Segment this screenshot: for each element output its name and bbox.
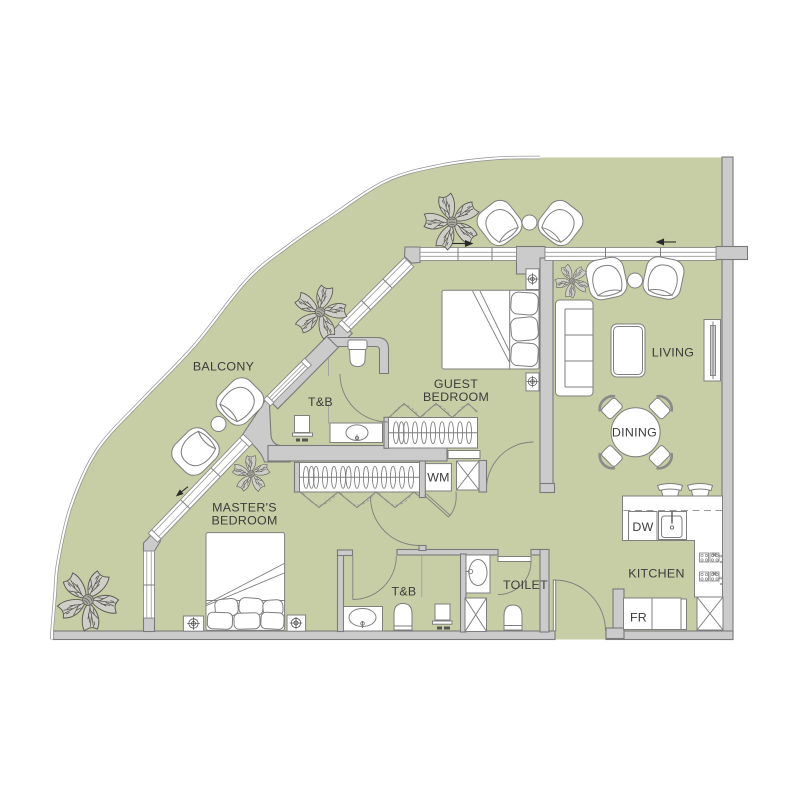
svg-text:DINING: DINING — [612, 426, 657, 440]
svg-text:DW: DW — [632, 520, 653, 534]
svg-text:GUEST: GUEST — [434, 377, 478, 391]
svg-text:MASTER'S: MASTER'S — [212, 501, 277, 515]
svg-text:WM: WM — [427, 471, 450, 485]
svg-text:T&B: T&B — [392, 585, 417, 599]
svg-text:BEDROOM: BEDROOM — [211, 514, 277, 528]
svg-text:T&B: T&B — [308, 395, 333, 409]
svg-text:FR: FR — [630, 611, 647, 625]
svg-text:BEDROOM: BEDROOM — [423, 390, 489, 404]
svg-text:KITCHEN: KITCHEN — [628, 567, 685, 581]
svg-text:TOILET: TOILET — [503, 578, 548, 592]
svg-text:LIVING: LIVING — [652, 346, 694, 360]
svg-text:BALCONY: BALCONY — [193, 360, 254, 374]
